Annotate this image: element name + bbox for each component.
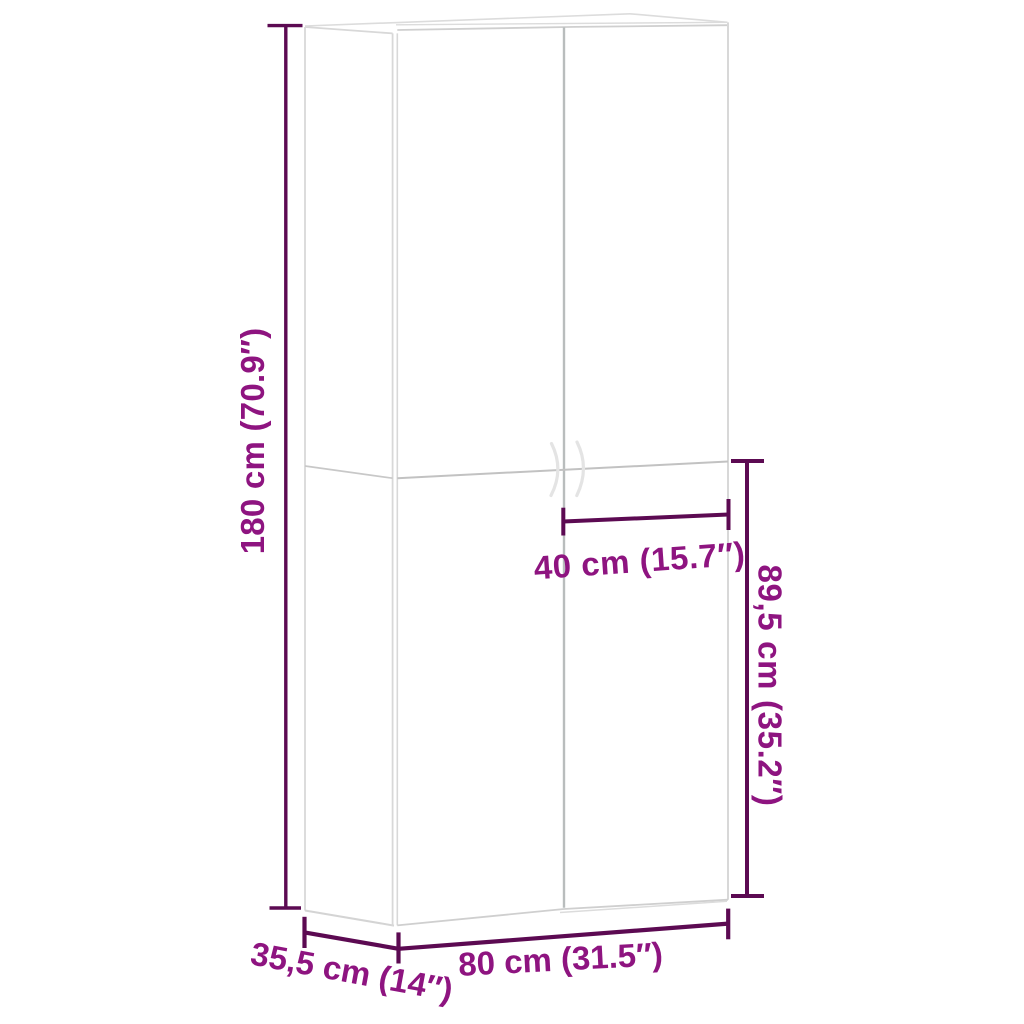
svg-text:180 cm (70.9″): 180 cm (70.9″) — [234, 328, 271, 555]
svg-text:89,5 cm (35.2″): 89,5 cm (35.2″) — [752, 564, 789, 806]
